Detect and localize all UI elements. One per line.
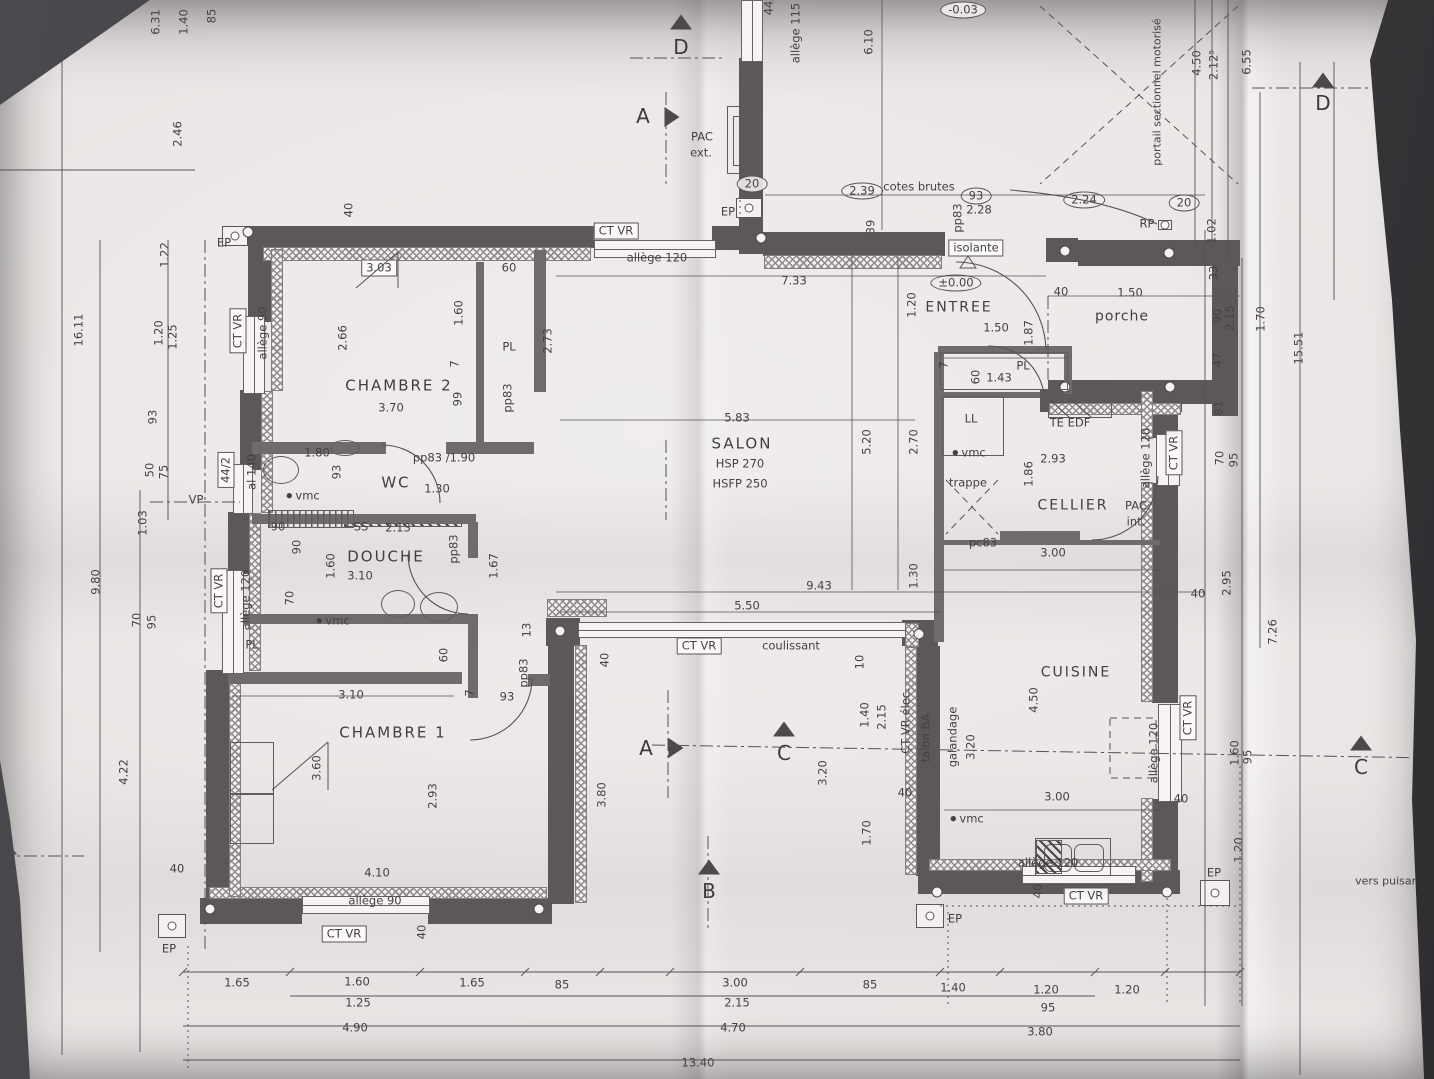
dimension-label: 3.10 xyxy=(338,689,364,702)
dimension-label: 2.13 xyxy=(385,522,411,535)
dimension-label: galandage xyxy=(947,707,960,768)
salon-hsp-label: HSP 270 xyxy=(716,458,765,471)
dimension-label: 9.80 xyxy=(90,569,103,595)
dimension-label: 1.50 xyxy=(983,322,1009,335)
dimension-label: 1.65 xyxy=(224,977,250,990)
dimension-label: 2.93 xyxy=(1040,453,1066,466)
dimension-label: 2.28 xyxy=(966,204,992,217)
dimension-label: 70 xyxy=(284,591,297,606)
dimension-label: 1.80 xyxy=(304,447,330,460)
dimension-label: 1.67 xyxy=(488,553,501,579)
wall-post-dot xyxy=(1060,246,1071,257)
partition-wall xyxy=(1000,531,1080,540)
dimension-label: 60 xyxy=(438,648,451,663)
sanitary-fixture xyxy=(381,590,415,618)
dimension-label: allège 120 xyxy=(1140,428,1153,489)
dimension-label: 13 xyxy=(521,623,534,638)
dimension-label: 1.20 xyxy=(153,320,166,346)
dimension-label: 95 xyxy=(1228,453,1241,468)
dimension-label: 1.65 xyxy=(459,977,485,990)
section-marker-triangle xyxy=(669,738,684,758)
dimension-label: 3.80 xyxy=(596,782,609,808)
dimension-label: 7 xyxy=(464,689,477,696)
wall-post-dot xyxy=(534,904,545,915)
room-label-douche: DOUCHE xyxy=(347,551,425,564)
room-label-porche: porche xyxy=(1095,311,1149,324)
section-marker-triangle xyxy=(1312,73,1334,88)
section-marker-triangle xyxy=(0,840,17,855)
dimension-label: 2.15 xyxy=(876,704,889,730)
section-marker-letter: C xyxy=(777,741,791,765)
vmc-label: vmc xyxy=(286,490,319,503)
room-label-cellier: CELLIER xyxy=(1038,500,1109,513)
dimension-label: EP xyxy=(162,943,176,956)
plan-paper-sheet: CHAMBRE 2 WC DOUCHE CHAMBRE 1 SALON HSP … xyxy=(0,0,1434,1079)
dimension-label: 2.12⁵ xyxy=(1208,50,1221,80)
tag-box-label: CT VR xyxy=(230,309,247,354)
dimension-label: 1.22 xyxy=(159,242,172,268)
wall-insulation-hatch xyxy=(576,646,586,902)
dimension-label: pp83 xyxy=(952,203,965,232)
rainwater-post-box xyxy=(736,198,762,218)
dimension-label: 2.66 xyxy=(337,325,350,351)
dimension-label: 5.50 xyxy=(734,600,760,613)
dimension-label: 1.40 xyxy=(940,982,966,995)
salon-hsfp-label: HSFP 250 xyxy=(712,478,767,491)
dimension-label: 3.00 xyxy=(722,977,748,990)
dimension-label: pp83 xyxy=(502,383,515,412)
dimension-label: 85 xyxy=(206,9,219,24)
vmc-label: vmc xyxy=(952,447,985,460)
dimension-label: allège 120 xyxy=(1148,723,1161,784)
dimension-label: 1.40 xyxy=(178,9,191,35)
window xyxy=(578,622,906,638)
dimension-label: talon BA xyxy=(920,714,933,763)
dimension-label: 1.03 xyxy=(137,510,150,536)
dimension-label: al 140 xyxy=(246,454,259,490)
dimension-label: EP xyxy=(217,237,231,250)
exterior-wall xyxy=(548,646,574,904)
dimension-label: 10 xyxy=(854,655,867,670)
wall-post-dot xyxy=(205,904,216,915)
level-badge: -0.03 xyxy=(940,2,986,19)
dimension-label: 1.02 xyxy=(1206,218,1219,244)
section-marker-letter: B xyxy=(0,860,3,884)
level-badge: 2.39 xyxy=(841,183,883,200)
dimension-label: allège 120 xyxy=(627,252,688,265)
exterior-wall xyxy=(1078,240,1240,266)
exterior-wall xyxy=(228,512,250,574)
section-marker-letter: C xyxy=(1354,755,1368,779)
dimension-label: 47 xyxy=(1212,353,1225,368)
level-badge: 20 xyxy=(737,176,768,193)
dimension-label: 33 xyxy=(1208,266,1221,281)
dimension-label: 85 xyxy=(863,979,878,992)
exterior-wall xyxy=(206,670,230,900)
section-marker-letter: D xyxy=(673,35,688,59)
dimension-label: 40 xyxy=(170,863,185,876)
dimension-label: 1.86 xyxy=(1023,461,1036,487)
dimension-label: pp83 xyxy=(518,658,531,687)
level-badge: 20 xyxy=(1169,195,1200,212)
wall-insulation-hatch xyxy=(765,256,941,268)
wall-post-dot xyxy=(1165,382,1176,393)
dimension-label: 2.93 xyxy=(427,783,440,809)
dimension-label: EP xyxy=(948,913,962,926)
dimension-label: 4.90 xyxy=(342,1022,368,1035)
dimension-label: PL xyxy=(502,341,515,354)
dimension-label: allège 115 xyxy=(790,3,803,64)
dimension-label: 95 xyxy=(1242,750,1255,765)
rainwater-post-box xyxy=(1158,220,1172,230)
dimension-label: trappe xyxy=(949,477,987,490)
dimension-label: 1.25 xyxy=(345,997,371,1010)
dimension-label: 4.70 xyxy=(720,1022,746,1035)
dimension-label: 6.55 xyxy=(1241,49,1254,75)
window xyxy=(1158,704,1182,802)
dimension-label: 1.70 xyxy=(861,820,874,846)
section-marker-triangle xyxy=(1350,736,1372,751)
level-badge: 2.24 xyxy=(1063,192,1105,209)
tag-box-label: 44/2 xyxy=(218,452,235,488)
dimension-label: 93 xyxy=(331,465,344,480)
dimension-label: 60 xyxy=(970,370,983,385)
wall-post-dot xyxy=(243,227,254,238)
dimension-label: RP xyxy=(1140,218,1155,231)
dimension-label: 9.43 xyxy=(806,580,832,593)
section-marker-triangle xyxy=(698,860,720,875)
dimension-label: int. xyxy=(1127,516,1146,529)
tag-box-label: CT VR xyxy=(1166,431,1183,476)
dimension-label: 40 xyxy=(898,787,913,800)
wall-insulation-hatch xyxy=(272,250,282,390)
dimension-label: 3.00 xyxy=(1040,547,1066,560)
dimension-label: SS xyxy=(354,521,369,534)
tag-box-label: CT VR xyxy=(1064,888,1109,905)
sanitary-fixture xyxy=(263,456,299,484)
dimension-label: 2.70 xyxy=(908,429,921,455)
room-label-wc: WC xyxy=(381,477,410,490)
dimension-label: 70 xyxy=(1214,451,1227,466)
dimension-label: EP xyxy=(721,206,735,219)
dimension-label: 1.87 xyxy=(1023,320,1036,346)
wall-post-dot xyxy=(1164,248,1175,259)
dimension-label: 1.30 xyxy=(908,563,921,589)
level-badge: ±0.00 xyxy=(930,275,981,292)
dimension-label: 3.20 xyxy=(965,734,978,760)
dimension-label: 4.22 xyxy=(118,759,131,785)
dimension-label: 1.43 xyxy=(986,372,1012,385)
partition-wall xyxy=(228,672,462,684)
dimension-label: 4.10 xyxy=(364,867,390,880)
dimension-label: 81 xyxy=(1213,401,1226,416)
dimension-label: 3.00 xyxy=(1044,791,1070,804)
room-label-entree: ENTREE xyxy=(925,302,992,315)
sink-bowl xyxy=(1074,844,1104,872)
dimension-label: 2.46 xyxy=(172,121,185,147)
dimension-label: 1.20 xyxy=(906,292,919,318)
dimension-label: 3.60 xyxy=(311,755,324,781)
dimension-label: 40 xyxy=(1191,588,1206,601)
dimension-label: 95 xyxy=(1041,1002,1056,1015)
dimension-label: 1.60 xyxy=(325,553,338,579)
fixture-outline xyxy=(230,742,274,794)
tag-box-label: CT VR xyxy=(594,223,639,240)
dimension-label: 40 xyxy=(416,925,429,940)
dimension-label: pc83 xyxy=(969,537,997,550)
room-label-salon: SALON xyxy=(712,438,773,451)
section-marker-triangle xyxy=(773,722,795,737)
wall-post-dot xyxy=(1162,887,1173,898)
dimension-label: 2.15 xyxy=(724,997,750,1010)
dimension-label: 5.20 xyxy=(861,429,874,455)
tag-box-label: CT VR xyxy=(211,569,228,614)
dimension-label: 7 xyxy=(938,361,951,368)
partition-wall xyxy=(528,674,550,686)
dimension-label: pp83 xyxy=(448,534,461,563)
dimension-label: 93 xyxy=(147,410,160,425)
dimension-label: 40 xyxy=(1054,286,1069,299)
room-label-cuisine: CUISINE xyxy=(1041,667,1112,680)
dimension-label: 95 xyxy=(146,615,159,630)
dimension-label: 40 xyxy=(343,203,356,218)
dimension-label: 2.73 xyxy=(542,328,555,354)
dimension-label: VP xyxy=(189,494,204,507)
dimension-label: 93 xyxy=(500,691,515,704)
dimension-label: 44/ xyxy=(763,0,776,15)
annotation-label: portail sectionnel motorisé xyxy=(1151,18,1164,165)
dimension-label: 2.95 xyxy=(1221,570,1234,596)
tag-box-label: CT VR xyxy=(1180,696,1197,741)
dimension-label: 39 xyxy=(865,220,878,235)
sanitary-fixture xyxy=(330,440,360,456)
section-marker-triangle xyxy=(665,107,680,127)
dimension-label: CT VR élec. xyxy=(900,688,913,754)
exterior-wall xyxy=(200,898,302,924)
dimension-label: 3.10 xyxy=(347,570,373,583)
section-marker-letter: D xyxy=(1315,91,1330,115)
dimension-label: 1.40 xyxy=(859,702,872,728)
tag-box-label: 3.03 xyxy=(361,260,397,277)
dimension-label: 16.11 xyxy=(73,314,86,347)
dimension-label: 1.20 xyxy=(1114,984,1140,997)
dimension-label: 3.80 xyxy=(1027,1026,1053,1039)
dimension-label: TE EDF xyxy=(1050,417,1091,430)
dimension-label: 3.70 xyxy=(378,402,404,415)
dimension-label: 1.70 xyxy=(1255,306,1268,332)
rainwater-post-box xyxy=(1200,880,1230,906)
partition-wall xyxy=(468,614,478,698)
photo-of-floor-plan: CHAMBRE 2 WC DOUCHE CHAMBRE 1 SALON HSP … xyxy=(0,0,1434,1079)
dimension-label: 75 xyxy=(158,465,171,480)
rainwater-post-box xyxy=(158,914,186,938)
dimension-label: 4.50 xyxy=(1191,50,1204,76)
dimension-label: 1.20 xyxy=(1233,837,1246,863)
fixture-outline xyxy=(230,794,274,844)
dimension-label: 7 xyxy=(449,360,462,367)
dimension-label: 3.20 xyxy=(817,760,830,786)
dimension-label: 1.60 xyxy=(344,976,370,989)
partition-wall xyxy=(468,522,478,558)
rainwater-post-box xyxy=(916,904,944,928)
wall-post-dot xyxy=(555,626,566,637)
dimension-label: 1.60 xyxy=(453,300,466,326)
wall-post-dot xyxy=(756,233,767,244)
dimension-label: 90 xyxy=(291,540,304,555)
dimension-label: PL xyxy=(1016,360,1029,373)
dimension-label: LL xyxy=(965,413,978,426)
fixture-outline xyxy=(733,116,755,166)
dimension-label: 60 xyxy=(502,262,517,275)
dimension-label: 6.31 xyxy=(150,9,163,35)
dimension-label: PL xyxy=(245,639,258,652)
dimension-label: 90 xyxy=(271,521,286,534)
dimension-label: ext. xyxy=(690,147,712,160)
section-marker-letter: A xyxy=(636,104,650,128)
dimension-label: 40 xyxy=(599,653,612,668)
exterior-wall xyxy=(763,232,945,256)
section-marker-triangle xyxy=(670,15,692,30)
dimension-label: 6.10 xyxy=(863,29,876,55)
exterior-wall xyxy=(252,226,594,248)
dimension-label: 7.33 xyxy=(781,275,807,288)
wall-insulation-hatch xyxy=(548,600,606,616)
dimension-label: EP xyxy=(1207,867,1221,880)
wall-post-dot xyxy=(914,629,925,640)
dimension-label: 4.50 xyxy=(1028,687,1041,713)
exterior-wall xyxy=(1152,483,1178,703)
dimension-label: allège 120 xyxy=(240,570,253,631)
annotation-label: vers puisard xyxy=(1355,875,1423,888)
dimension-label: 40 xyxy=(1032,884,1045,899)
dimension-label: pp83 /1.90 xyxy=(413,452,475,465)
dimension-label: allège 90 xyxy=(257,306,270,359)
dimension-label: 15.51 xyxy=(1293,332,1306,365)
dimension-label: coulissant xyxy=(762,640,820,653)
dimension-label: 1.30 xyxy=(424,483,450,496)
window xyxy=(741,0,763,62)
dimension-label: 50 xyxy=(144,463,157,478)
room-label-chambre1: CHAMBRE 1 xyxy=(339,727,446,740)
tag-box-label: CT VR xyxy=(677,638,722,655)
dimension-label: PAC xyxy=(691,131,713,144)
room-label-chambre2: CHAMBRE 2 xyxy=(345,380,452,393)
partition-wall xyxy=(534,250,546,392)
dimension-label: 85 xyxy=(555,979,570,992)
dimension-label: 99 xyxy=(452,392,465,407)
dimension-label: 13.40 xyxy=(682,1057,715,1070)
vmc-label: vmc xyxy=(316,615,349,628)
dimension-label: allège 120 xyxy=(1018,857,1079,870)
dimension-label: 7.26 xyxy=(1267,619,1280,645)
dimension-label: cotes brutes xyxy=(883,181,954,194)
tag-box-label: CT VR xyxy=(322,926,367,943)
section-marker-letter: B xyxy=(702,879,716,903)
dimension-label: 2.15 xyxy=(1224,305,1237,331)
dimension-label: PAC xyxy=(1125,500,1147,513)
sanitary-fixture xyxy=(420,592,458,622)
exterior-wall xyxy=(712,226,742,250)
wall-insulation-hatch xyxy=(906,648,916,874)
dimension-label: 5.83 xyxy=(724,412,750,425)
dimension-label: 70 xyxy=(131,613,144,628)
partition-wall xyxy=(476,262,484,444)
tag-box-label: isolante xyxy=(948,240,1003,257)
wall-post-dot xyxy=(932,887,943,898)
vmc-label: vmc xyxy=(950,813,983,826)
dimension-label: 1.25 xyxy=(167,324,180,350)
dimension-label: 1.50 xyxy=(1117,287,1143,300)
dimension-label: allège 90 xyxy=(348,895,401,908)
section-marker-letter: A xyxy=(639,736,653,760)
dimension-label: 1.20 xyxy=(1033,984,1059,997)
dimension-label: 40 xyxy=(1174,793,1189,806)
